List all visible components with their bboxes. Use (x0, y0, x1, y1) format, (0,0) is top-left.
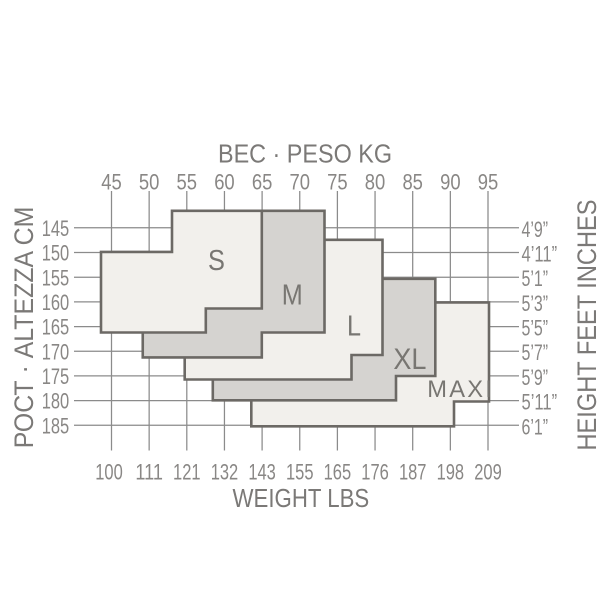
svg-text:165: 165 (42, 315, 70, 340)
svg-text:155: 155 (42, 265, 70, 290)
svg-text:198: 198 (437, 460, 465, 485)
svg-text:50: 50 (139, 170, 160, 195)
svg-text:111: 111 (135, 460, 163, 485)
svg-text:ВЕС · PESO KG: ВЕС · PESO KG (218, 141, 392, 169)
svg-text:M: M (282, 279, 303, 311)
svg-text:95: 95 (478, 170, 499, 195)
svg-text:L: L (347, 311, 361, 343)
svg-text:80: 80 (365, 170, 386, 195)
svg-text:121: 121 (173, 460, 201, 485)
svg-text:5’7”: 5’7” (522, 340, 549, 365)
svg-text:4’9”: 4’9” (522, 217, 549, 242)
svg-text:170: 170 (42, 339, 70, 364)
svg-text:XL: XL (393, 343, 426, 376)
svg-text:209: 209 (474, 460, 502, 485)
svg-text:185: 185 (42, 413, 70, 438)
svg-text:143: 143 (248, 460, 276, 485)
svg-text:65: 65 (252, 170, 273, 195)
svg-text:180: 180 (42, 389, 70, 414)
svg-text:85: 85 (402, 170, 423, 195)
svg-text:5’1”: 5’1” (522, 266, 549, 291)
svg-text:MAXI: MAXI (427, 377, 494, 403)
svg-text:5’11”: 5’11” (522, 390, 558, 415)
svg-text:S: S (208, 245, 225, 277)
svg-text:60: 60 (214, 170, 235, 195)
svg-text:90: 90 (440, 170, 461, 195)
svg-text:145: 145 (42, 216, 70, 241)
svg-text:WEIGHT LBS: WEIGHT LBS (233, 485, 370, 513)
svg-text:175: 175 (42, 364, 70, 389)
svg-text:4’11”: 4’11” (522, 242, 558, 267)
svg-text:75: 75 (327, 170, 348, 195)
svg-text:155: 155 (286, 460, 314, 485)
svg-text:5’9”: 5’9” (522, 365, 549, 390)
svg-text:5’5”: 5’5” (522, 316, 549, 341)
svg-text:165: 165 (324, 460, 352, 485)
svg-text:132: 132 (211, 460, 239, 485)
svg-text:5’3”: 5’3” (522, 291, 549, 316)
svg-text:РОСТ · ALTEZZA CM: РОСТ · ALTEZZA CM (9, 207, 39, 449)
svg-text:100: 100 (95, 460, 123, 485)
svg-text:6’1”: 6’1” (522, 414, 549, 439)
svg-text:150: 150 (42, 241, 70, 266)
svg-text:176: 176 (361, 460, 389, 485)
svg-text:55: 55 (177, 170, 198, 195)
svg-text:187: 187 (399, 460, 427, 485)
svg-text:45: 45 (101, 170, 122, 195)
svg-text:HEIGHT FEET INCHES: HEIGHT FEET INCHES (572, 200, 600, 451)
svg-text:160: 160 (42, 290, 70, 315)
svg-text:70: 70 (290, 170, 311, 195)
